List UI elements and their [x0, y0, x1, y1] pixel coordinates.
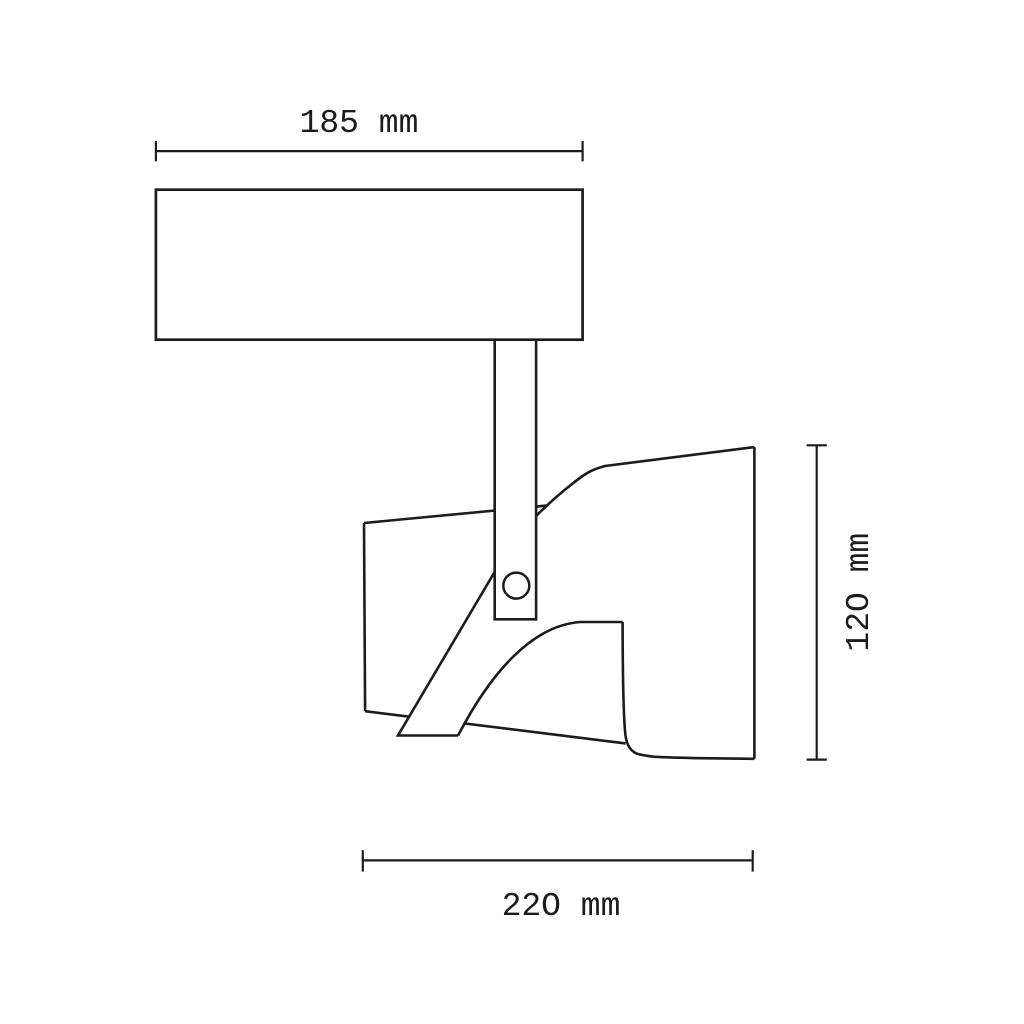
svg-text:12O mm: 12O mm [841, 533, 878, 652]
svg-text:22O mm: 22O mm [502, 888, 621, 925]
svg-text:185 mm: 185 mm [300, 105, 419, 142]
